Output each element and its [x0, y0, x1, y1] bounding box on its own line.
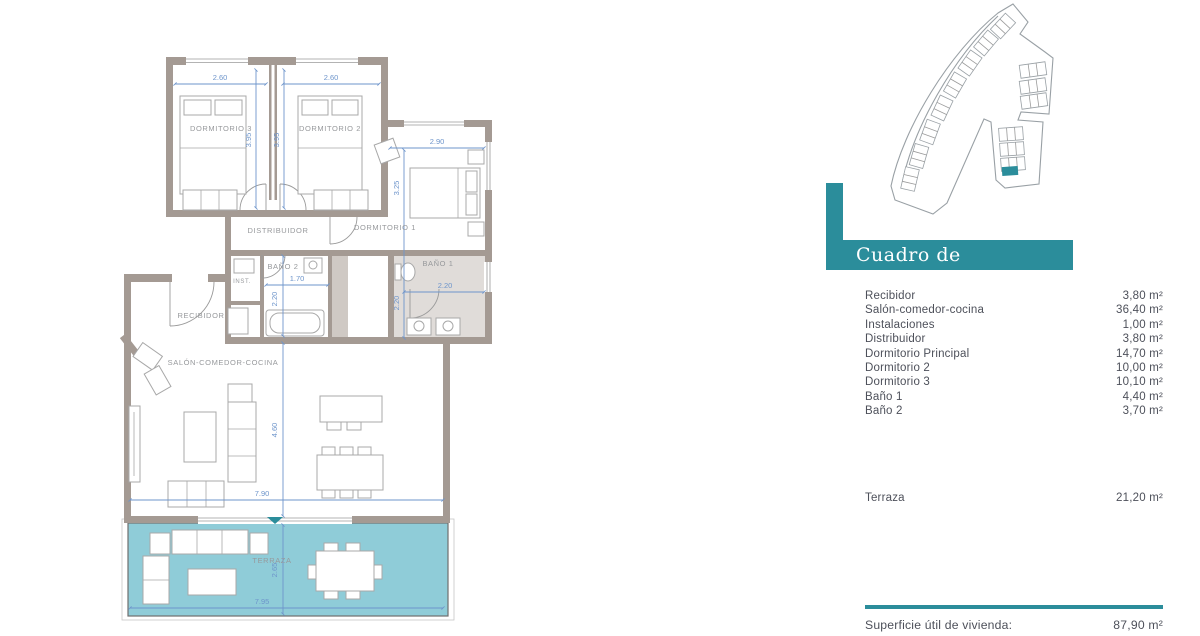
site-plan-units	[901, 13, 1048, 191]
bed-dormitorio1	[410, 150, 484, 236]
total-value: 87,90 m²	[1113, 618, 1163, 632]
floor-plan-page: 2.60 2.60 3.95 3.95 2.90 3.25 2.20 2.20 …	[0, 0, 1200, 636]
surface-value: 1,00 m²	[1123, 319, 1163, 333]
surface-label: Salón-comedor-cocina	[865, 304, 984, 318]
surface-value: 10,00 m²	[1116, 362, 1163, 376]
surface-label: Dormitorio 3	[865, 376, 930, 390]
surface-value: 4,40 m²	[1123, 391, 1163, 405]
surface-value: 3,70 m²	[1123, 405, 1163, 419]
surface-row: Dormitorio 2 10,00 m²	[865, 362, 1163, 376]
surface-row: Distribuidor 3,80 m²	[865, 333, 1163, 347]
surface-row: Baño 2 3,70 m²	[865, 405, 1163, 419]
room-label-bano1: BAÑO 1	[422, 259, 453, 268]
dimension-label: 2.20	[438, 281, 453, 290]
surface-value: 14,70 m²	[1116, 348, 1163, 362]
wardrobe-dormitorio2	[314, 190, 368, 210]
surfaces-header: Cuadro de superficies	[843, 240, 1073, 270]
dimension-label: 7.90	[255, 489, 270, 498]
surface-row: Baño 1 4,40 m²	[865, 391, 1163, 405]
dimension-label: 1.70	[290, 274, 305, 283]
highlighted-unit	[1002, 166, 1019, 176]
surface-value: 3,80 m²	[1123, 333, 1163, 347]
surface-label: Dormitorio 2	[865, 362, 930, 376]
surfaces-table: Recibidor 3,80 m² Salón-comedor-cocina 3…	[865, 290, 1163, 420]
living-room-furniture	[129, 343, 256, 507]
surface-row-terraza: Terraza 21,20 m²	[865, 492, 1163, 504]
room-label-terraza: TERRAZA	[252, 556, 291, 565]
surfaces-title: Cuadro de superficies	[856, 244, 967, 296]
room-label-salon: SALÓN-COMEDOR-COCINA	[168, 358, 279, 367]
surface-label: Instalaciones	[865, 319, 935, 333]
kitchen-island	[320, 396, 382, 430]
bed-dormitorio3	[180, 96, 246, 194]
dimension-label: 3.25	[392, 181, 401, 196]
dimension-label: 3.95	[272, 133, 281, 148]
floor-plan: 2.60 2.60 3.95 3.95 2.90 3.25 2.20 2.20 …	[60, 40, 540, 632]
total-label: Superficie útil de vivienda:	[865, 618, 1012, 632]
room-label-dormitorio1: DORMITORIO 1	[354, 223, 416, 232]
surface-row: Dormitorio Principal 14,70 m²	[865, 348, 1163, 362]
room-label-dormitorio3: DORMITORIO 3	[190, 124, 252, 133]
dimension-label: 2.20	[392, 296, 401, 311]
services-shaft	[332, 256, 348, 337]
dining-table	[317, 447, 383, 498]
surface-row: Instalaciones 1,00 m²	[865, 319, 1163, 333]
surface-value: 36,40 m²	[1116, 304, 1163, 318]
dimension-label: 2.90	[430, 137, 445, 146]
dimension-label: 3.95	[244, 133, 253, 148]
decor-square	[374, 138, 400, 164]
surface-value: 3,80 m²	[1123, 290, 1163, 304]
bed-dormitorio2	[298, 96, 362, 194]
surface-label: Distribuidor	[865, 333, 926, 347]
surface-label: Dormitorio Principal	[865, 348, 969, 362]
dimension-label: 2.60	[324, 73, 339, 82]
room-label-inst: INST.	[233, 279, 251, 285]
surface-label: Terraza	[865, 492, 905, 504]
header-accent-bracket	[826, 183, 843, 270]
surface-label: Baño 1	[865, 391, 903, 405]
surface-row: Recibidor 3,80 m²	[865, 290, 1163, 304]
wardrobe-dormitorio3	[183, 190, 237, 210]
dimension-label: 2.20	[270, 292, 279, 307]
dimension-label: 4.60	[270, 423, 279, 438]
room-label-bano2: BAÑO 2	[267, 262, 298, 271]
surface-value: 10,10 m²	[1116, 376, 1163, 390]
room-label-distribuidor: DISTRIBUIDOR	[248, 226, 309, 235]
surface-row: Dormitorio 3 10,10 m²	[865, 376, 1163, 390]
surface-value: 21,20 m²	[1116, 492, 1163, 504]
total-divider	[865, 605, 1163, 609]
dimension-label: 2.60	[213, 73, 228, 82]
room-label-recibidor: RECIBIDOR	[177, 311, 224, 320]
surface-label: Baño 2	[865, 405, 903, 419]
installations-unit	[234, 259, 254, 273]
surface-label: Recibidor	[865, 290, 915, 304]
dimension-label: 7.95	[255, 597, 270, 606]
surface-row: Salón-comedor-cocina 36,40 m²	[865, 304, 1163, 318]
total-row: Superficie útil de vivienda: 87,90 m²	[865, 618, 1163, 632]
hall-cabinet	[228, 308, 248, 334]
site-plan-thumbnail	[855, 0, 1110, 220]
room-label-dormitorio2: DORMITORIO 2	[299, 124, 361, 133]
